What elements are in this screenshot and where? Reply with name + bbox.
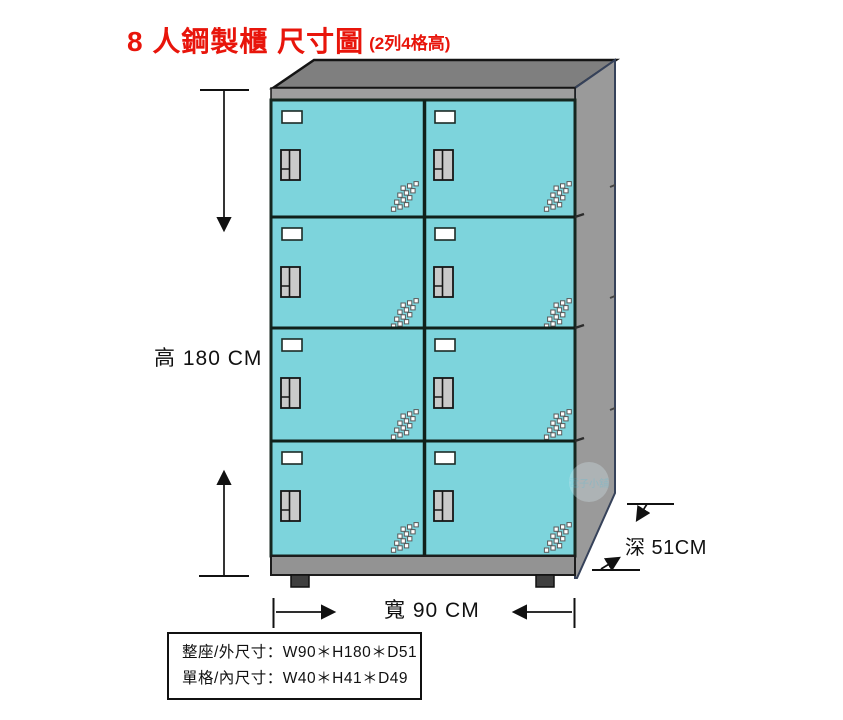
vent-hole	[408, 412, 412, 416]
name-card-slot	[435, 452, 455, 464]
vent-hole	[401, 539, 405, 543]
vent-hole	[408, 184, 412, 188]
vent-hole	[551, 322, 555, 326]
vent-hole	[395, 541, 399, 545]
cabinet-foot-left	[291, 575, 309, 587]
vent-hole	[551, 433, 555, 437]
vent-hole	[548, 317, 552, 321]
watermark: 電子小舖	[569, 462, 609, 502]
vent-hole	[554, 426, 558, 430]
vent-hole	[564, 189, 568, 193]
vent-hole	[557, 203, 561, 207]
cabinet-base	[271, 556, 575, 575]
vent-hole	[398, 310, 402, 314]
width-dimension-label: 寬 90 CM	[384, 594, 480, 624]
vent-hole	[401, 303, 405, 307]
vent-hole	[391, 548, 395, 552]
vent-hole	[557, 320, 561, 324]
vent-hole	[551, 546, 555, 550]
vent-hole	[548, 200, 552, 204]
watermark-text: 電子小舖	[569, 477, 609, 490]
door-handle	[434, 267, 453, 297]
vent-hole	[404, 308, 408, 312]
name-card-slot	[282, 228, 302, 240]
vent-hole	[561, 313, 565, 317]
vent-hole	[561, 196, 565, 200]
spec-outer-dimensions: 整座/外尺寸：W90＊H180＊D51	[182, 640, 414, 666]
vent-hole	[401, 315, 405, 319]
vent-hole	[414, 523, 418, 527]
vent-hole	[404, 431, 408, 435]
vent-hole	[398, 205, 402, 209]
door-handle	[281, 150, 300, 180]
vent-hole	[401, 198, 405, 202]
cabinet: 電子小舖	[271, 60, 616, 587]
door-handle	[281, 491, 300, 521]
vent-hole	[411, 306, 415, 310]
vent-hole	[564, 530, 568, 534]
vent-hole	[404, 532, 408, 536]
height-dimension-top	[200, 90, 249, 230]
vent-hole	[401, 426, 405, 430]
cabinet-top-face	[273, 60, 616, 88]
name-card-slot	[282, 339, 302, 351]
vent-hole	[561, 525, 565, 529]
vent-hole	[554, 186, 558, 190]
height-dimension-label: 高 180 CM	[154, 342, 262, 372]
vent-hole	[561, 184, 565, 188]
vent-hole	[401, 527, 405, 531]
vent-hole	[404, 191, 408, 195]
name-card-slot	[435, 228, 455, 240]
vent-hole	[404, 203, 408, 207]
vent-hole	[567, 410, 571, 414]
vent-hole	[408, 424, 412, 428]
vent-hole	[411, 189, 415, 193]
vent-hole	[544, 435, 548, 439]
page-title: 8 人鋼製櫃 尺寸圖(2列4格高)	[127, 20, 450, 60]
vent-hole	[401, 186, 405, 190]
vent-hole	[395, 317, 399, 321]
depth-arrow-upright-icon	[601, 558, 619, 569]
vent-hole	[411, 530, 415, 534]
vent-hole	[401, 414, 405, 418]
vent-hole	[554, 303, 558, 307]
door-handle	[434, 491, 453, 521]
vent-hole	[561, 301, 565, 305]
vent-hole	[398, 546, 402, 550]
cabinet-foot-right	[536, 575, 554, 587]
vent-hole	[561, 537, 565, 541]
vent-hole	[557, 544, 561, 548]
vent-hole	[408, 301, 412, 305]
door-handle	[281, 267, 300, 297]
vent-hole	[557, 419, 561, 423]
vent-hole	[395, 428, 399, 432]
title-sub: (2列4格高)	[369, 34, 450, 53]
height-dimension-bottom	[199, 472, 249, 576]
vent-hole	[554, 315, 558, 319]
depth-arrow-downleft-icon	[637, 504, 647, 520]
vent-hole	[411, 417, 415, 421]
name-card-slot	[282, 452, 302, 464]
name-card-slot	[282, 111, 302, 123]
vent-hole	[398, 534, 402, 538]
vent-hole	[554, 414, 558, 418]
diagram-canvas: 電子小舖	[0, 0, 843, 720]
vent-hole	[551, 310, 555, 314]
vent-hole	[544, 548, 548, 552]
vent-hole	[554, 527, 558, 531]
vent-hole	[398, 193, 402, 197]
vent-hole	[557, 532, 561, 536]
spec-box: 整座/外尺寸：W90＊H180＊D51 單格/內尺寸：W40＊H41＊D49	[167, 632, 422, 700]
vent-hole	[561, 424, 565, 428]
vent-hole	[544, 207, 548, 211]
vent-hole	[408, 537, 412, 541]
vent-hole	[567, 523, 571, 527]
vent-hole	[391, 207, 395, 211]
vent-hole	[398, 322, 402, 326]
vent-hole	[414, 182, 418, 186]
vent-hole	[548, 541, 552, 545]
vent-hole	[557, 308, 561, 312]
vent-hole	[557, 431, 561, 435]
vent-hole	[564, 417, 568, 421]
vent-hole	[414, 410, 418, 414]
vent-hole	[408, 196, 412, 200]
vent-hole	[404, 320, 408, 324]
door-handle	[434, 150, 453, 180]
vent-hole	[548, 428, 552, 432]
depth-dimension-label: 深 51CM	[625, 531, 707, 560]
vent-hole	[551, 193, 555, 197]
vent-hole	[567, 182, 571, 186]
vent-hole	[567, 299, 571, 303]
vent-hole	[551, 205, 555, 209]
vent-hole	[414, 299, 418, 303]
vent-hole	[398, 421, 402, 425]
vent-hole	[391, 435, 395, 439]
title-main: 8 人鋼製櫃 尺寸圖	[127, 26, 364, 57]
vent-hole	[395, 200, 399, 204]
vent-hole	[404, 544, 408, 548]
vent-hole	[408, 525, 412, 529]
vent-hole	[551, 421, 555, 425]
name-card-slot	[435, 111, 455, 123]
vent-hole	[551, 534, 555, 538]
vent-hole	[557, 191, 561, 195]
name-card-slot	[435, 339, 455, 351]
door-handle	[281, 378, 300, 408]
vent-hole	[554, 539, 558, 543]
spec-inner-dimensions: 單格/內尺寸：W40＊H41＊D49	[182, 666, 414, 692]
vent-hole	[398, 433, 402, 437]
vent-hole	[564, 306, 568, 310]
vent-hole	[561, 412, 565, 416]
vent-hole	[408, 313, 412, 317]
vent-hole	[404, 419, 408, 423]
vent-hole	[554, 198, 558, 202]
door-handle	[434, 378, 453, 408]
